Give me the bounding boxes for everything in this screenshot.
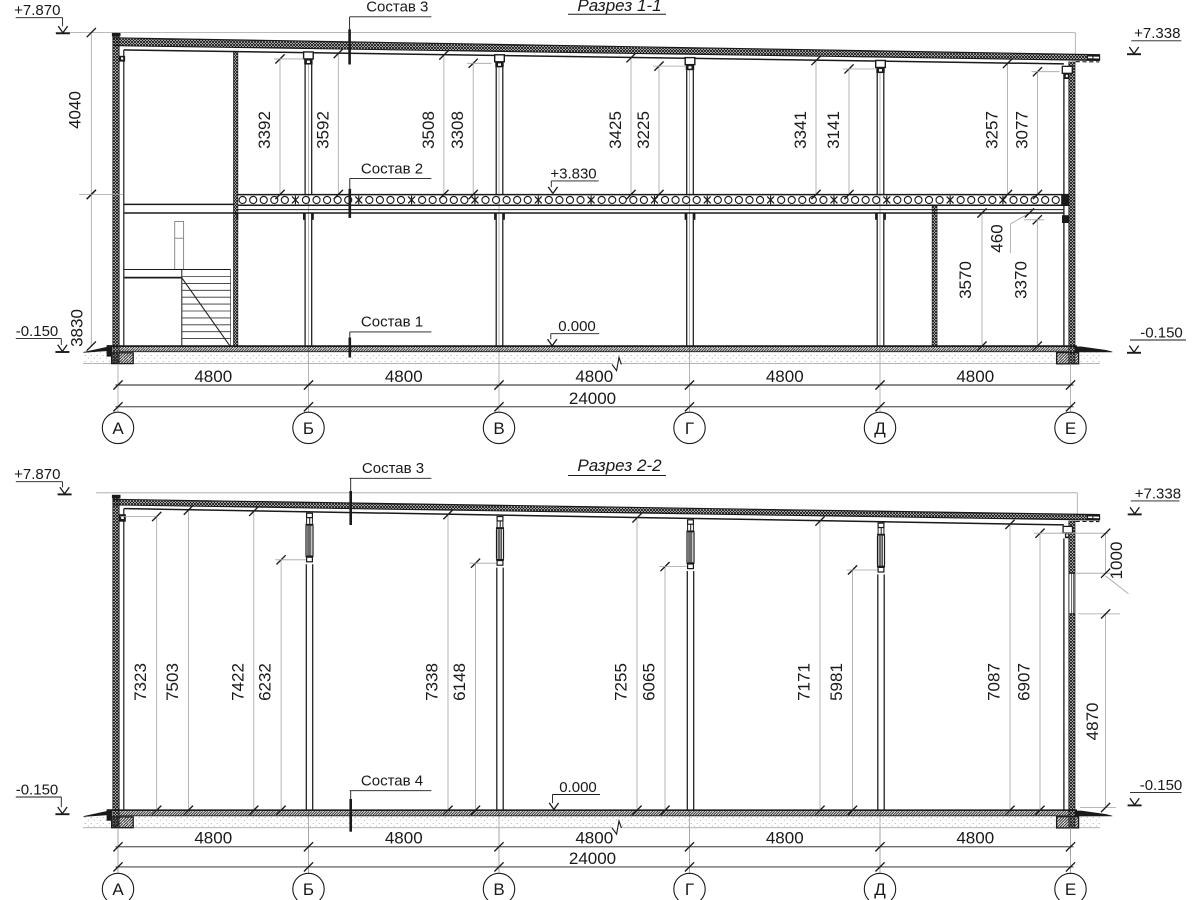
svg-text:-0.150: -0.150 xyxy=(1140,324,1183,341)
svg-text:Е: Е xyxy=(1065,880,1076,899)
svg-text:+7.870: +7.870 xyxy=(14,2,60,19)
svg-text:4800: 4800 xyxy=(194,829,232,848)
svg-text:4870: 4870 xyxy=(1083,702,1102,740)
svg-text:Е: Е xyxy=(1065,419,1076,438)
svg-text:6232: 6232 xyxy=(256,663,275,701)
svg-text:3570: 3570 xyxy=(956,261,975,299)
svg-text:7338: 7338 xyxy=(423,663,442,701)
svg-text:3508: 3508 xyxy=(419,111,438,149)
svg-text:Состав 4: Состав 4 xyxy=(361,772,423,789)
svg-text:6148: 6148 xyxy=(450,663,469,701)
svg-text:3141: 3141 xyxy=(824,111,843,149)
svg-text:7087: 7087 xyxy=(985,663,1004,701)
svg-text:7255: 7255 xyxy=(612,663,631,701)
svg-text:1000: 1000 xyxy=(1107,542,1126,580)
svg-text:4800: 4800 xyxy=(575,829,613,848)
svg-text:3225: 3225 xyxy=(634,111,653,149)
svg-text:Разрез 1-1: Разрез 1-1 xyxy=(577,0,661,15)
svg-text:4800: 4800 xyxy=(575,367,613,386)
svg-text:+7.338: +7.338 xyxy=(1134,25,1180,42)
svg-text:В: В xyxy=(493,880,504,899)
svg-text:3257: 3257 xyxy=(983,111,1002,149)
svg-text:3077: 3077 xyxy=(1013,111,1032,149)
svg-text:3392: 3392 xyxy=(255,111,274,149)
svg-text:4800: 4800 xyxy=(956,829,994,848)
svg-text:3341: 3341 xyxy=(791,111,810,149)
svg-text:Состав 2: Состав 2 xyxy=(361,160,423,177)
svg-text:3592: 3592 xyxy=(313,111,332,149)
svg-text:-0.150: -0.150 xyxy=(16,781,59,798)
svg-text:4800: 4800 xyxy=(956,367,994,386)
svg-text:Г: Г xyxy=(685,419,694,438)
svg-text:7503: 7503 xyxy=(163,663,182,701)
svg-text:А: А xyxy=(112,880,124,899)
svg-text:А: А xyxy=(112,419,124,438)
svg-text:-0.150: -0.150 xyxy=(1140,777,1183,794)
svg-text:Г: Г xyxy=(685,880,694,899)
svg-text:7323: 7323 xyxy=(131,663,150,701)
svg-text:6065: 6065 xyxy=(640,663,659,701)
svg-text:7422: 7422 xyxy=(228,663,247,701)
svg-text:4800: 4800 xyxy=(194,367,232,386)
svg-text:0.000: 0.000 xyxy=(559,779,597,796)
svg-text:4040: 4040 xyxy=(66,91,85,129)
svg-text:+3.830: +3.830 xyxy=(550,165,596,182)
svg-text:Б: Б xyxy=(303,419,314,438)
svg-text:-0.150: -0.150 xyxy=(16,323,59,340)
svg-text:3308: 3308 xyxy=(448,111,467,149)
svg-text:Д: Д xyxy=(874,419,886,438)
svg-text:3370: 3370 xyxy=(1012,261,1031,299)
svg-text:4800: 4800 xyxy=(385,367,423,386)
svg-text:3425: 3425 xyxy=(606,111,625,149)
svg-text:6907: 6907 xyxy=(1015,663,1034,701)
svg-text:4800: 4800 xyxy=(385,829,423,848)
svg-text:4800: 4800 xyxy=(766,367,804,386)
svg-text:24000: 24000 xyxy=(569,389,616,408)
svg-text:24000: 24000 xyxy=(569,849,616,868)
svg-text:Б: Б xyxy=(303,880,314,899)
svg-text:460: 460 xyxy=(988,224,1007,252)
svg-text:Д: Д xyxy=(874,880,886,899)
svg-text:В: В xyxy=(493,419,504,438)
svg-text:Разрез 2-2: Разрез 2-2 xyxy=(577,456,662,475)
svg-text:Состав 3: Состав 3 xyxy=(366,0,428,16)
svg-text:Состав 3: Состав 3 xyxy=(362,460,424,477)
svg-text:0.000: 0.000 xyxy=(558,318,596,335)
svg-text:+7.870: +7.870 xyxy=(14,466,60,483)
svg-text:+7.338: +7.338 xyxy=(1135,485,1181,502)
svg-text:7171: 7171 xyxy=(795,663,814,701)
svg-text:3830: 3830 xyxy=(67,309,86,347)
svg-text:Состав 1: Состав 1 xyxy=(361,314,423,331)
svg-text:5981: 5981 xyxy=(827,663,846,701)
svg-text:4800: 4800 xyxy=(766,829,804,848)
